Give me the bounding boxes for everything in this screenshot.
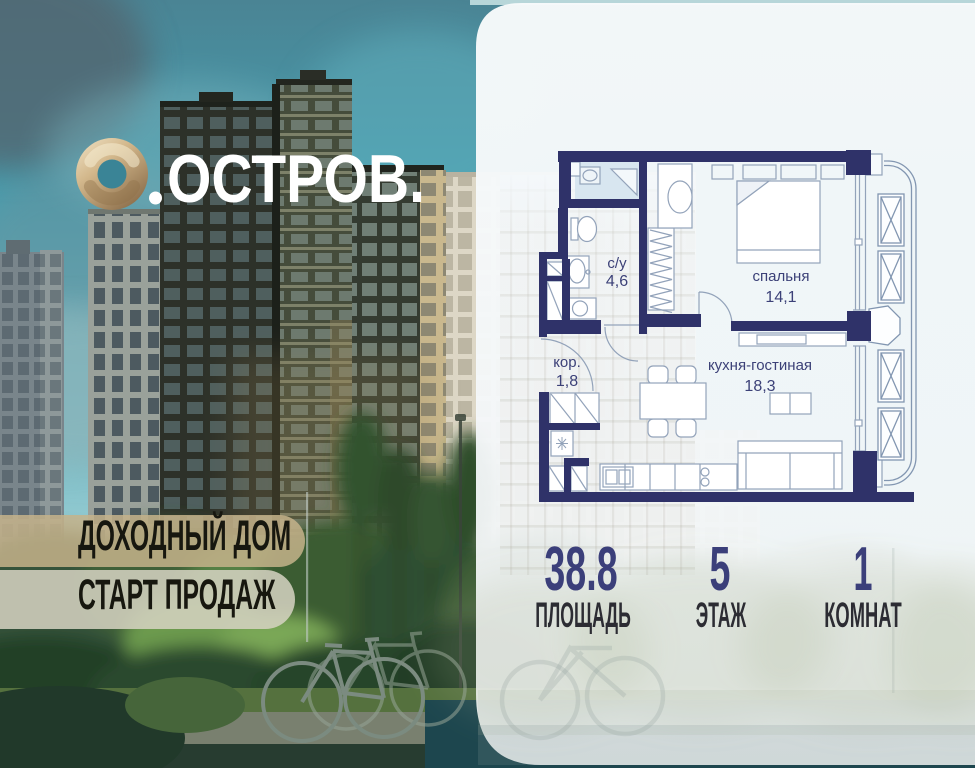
svg-text:18,3: 18,3	[744, 378, 775, 395]
svg-text:кухня-гостиная: кухня-гостиная	[708, 357, 812, 374]
svg-text:4,6: 4,6	[606, 273, 628, 290]
svg-text:14,1: 14,1	[765, 289, 796, 306]
svg-text:спальня: спальня	[753, 268, 810, 285]
svg-text:с/у: с/у	[607, 255, 627, 272]
svg-text:1,8: 1,8	[556, 373, 578, 390]
svg-text:кор.: кор.	[553, 354, 581, 371]
